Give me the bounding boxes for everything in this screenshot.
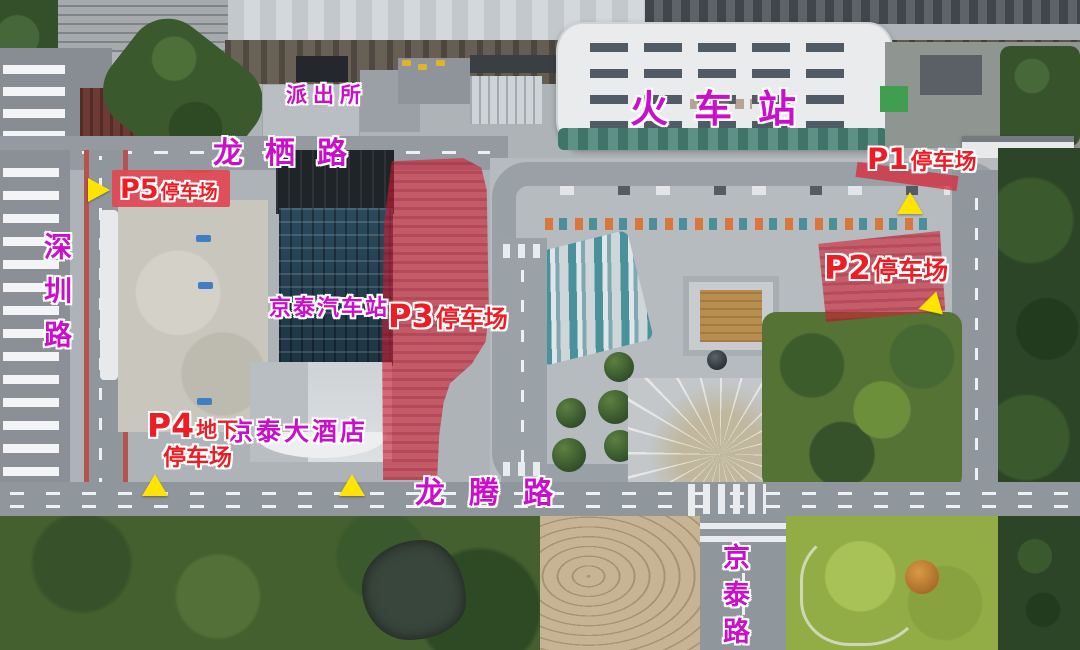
dark-roof-building-right (920, 55, 982, 95)
longteng-west-arrow-icon (142, 474, 168, 496)
blue-car (197, 398, 212, 405)
longteng-crosswalk (688, 484, 766, 516)
p4-suffix: 停车场 (163, 447, 238, 470)
p4-parking-label: P4 地下 停车场 (147, 409, 238, 470)
p4-code: P4 (147, 409, 194, 442)
white-shed-roof (100, 210, 118, 380)
police-station-dark-roof (296, 56, 348, 82)
p2-suffix: 停车场 (873, 258, 948, 283)
p2-parking-label: P2 停车场 (824, 251, 948, 284)
p2-code: P2 (824, 251, 871, 284)
bus-station-solar-roof (279, 208, 393, 366)
p5-suffix: 停车场 (161, 183, 218, 202)
trees-bottom-right (998, 516, 1080, 650)
longxi-road-label: 龙栖路 (213, 139, 369, 169)
green-turf-patch (880, 86, 908, 112)
blue-car (198, 282, 213, 289)
plaza-square-garden (700, 290, 762, 342)
blue-car (196, 235, 211, 242)
jingtai-bus-station-label: 京泰汽车站 (269, 298, 389, 320)
plaza-exit-road (501, 238, 547, 486)
white-canopy-building (470, 76, 542, 124)
parked-buses-top-left (3, 54, 65, 140)
platform-canopy-dark (645, 0, 1080, 24)
p3-arrow-icon (339, 474, 365, 496)
train-station-label: 火车站 (630, 90, 822, 128)
tree-column-far-right (998, 148, 1080, 510)
jingtai-road-crosswalk (700, 520, 786, 542)
police-station-label: 派出所 (286, 85, 367, 106)
p1-code: P1 (867, 145, 908, 174)
longteng-road-label: 龙腾路 (415, 479, 577, 509)
p4-underground: 地下 (196, 420, 238, 441)
crosswalk-north (503, 244, 545, 258)
east-plaza-greenery (762, 312, 962, 490)
p3-parking-label: P3 停车场 (388, 300, 508, 332)
trees-upper-right (1000, 46, 1080, 146)
plaza-tree (556, 398, 586, 428)
p3-suffix: 停车场 (436, 307, 508, 331)
p5-code: P5 (120, 176, 159, 203)
parked-cars-row (545, 218, 930, 230)
p1-arrow-icon (897, 192, 923, 214)
yellow-truck (418, 64, 427, 70)
p5-arrow-icon (88, 178, 110, 202)
exit-road-centerline (521, 262, 524, 462)
plaza-tree (552, 438, 586, 472)
pond (362, 540, 466, 640)
orange-tree (905, 560, 939, 594)
plaza-tree (598, 390, 632, 424)
shenzhen-road-label: 深圳路 (42, 232, 70, 364)
jingtai-road-label: 京泰路 (720, 543, 747, 650)
p1-parking-label: P1 停车场 (867, 145, 976, 174)
lawn-path (800, 530, 926, 646)
yellow-truck (436, 60, 445, 66)
jingtai-hotel-label: 京泰大酒店 (228, 419, 368, 444)
yellow-truck (402, 60, 411, 66)
crosswalk-south (503, 462, 545, 476)
cars-on-forecourt-road (560, 186, 950, 195)
aerial-parking-map: 火车站 派出所 京泰汽车站 京泰大酒店 龙栖路 深圳路 龙腾路 京泰路 P1 停… (0, 0, 1080, 650)
dirt-field (540, 516, 702, 650)
p5-parking-label: P5 停车场 (120, 176, 218, 203)
paved-parking-ground (118, 200, 268, 432)
p3-code: P3 (388, 300, 434, 332)
plaza-fountain (707, 350, 727, 370)
east-road-centerline (975, 180, 978, 480)
p1-suffix: 停车场 (910, 152, 976, 174)
station-entrance-canopy (558, 128, 888, 150)
